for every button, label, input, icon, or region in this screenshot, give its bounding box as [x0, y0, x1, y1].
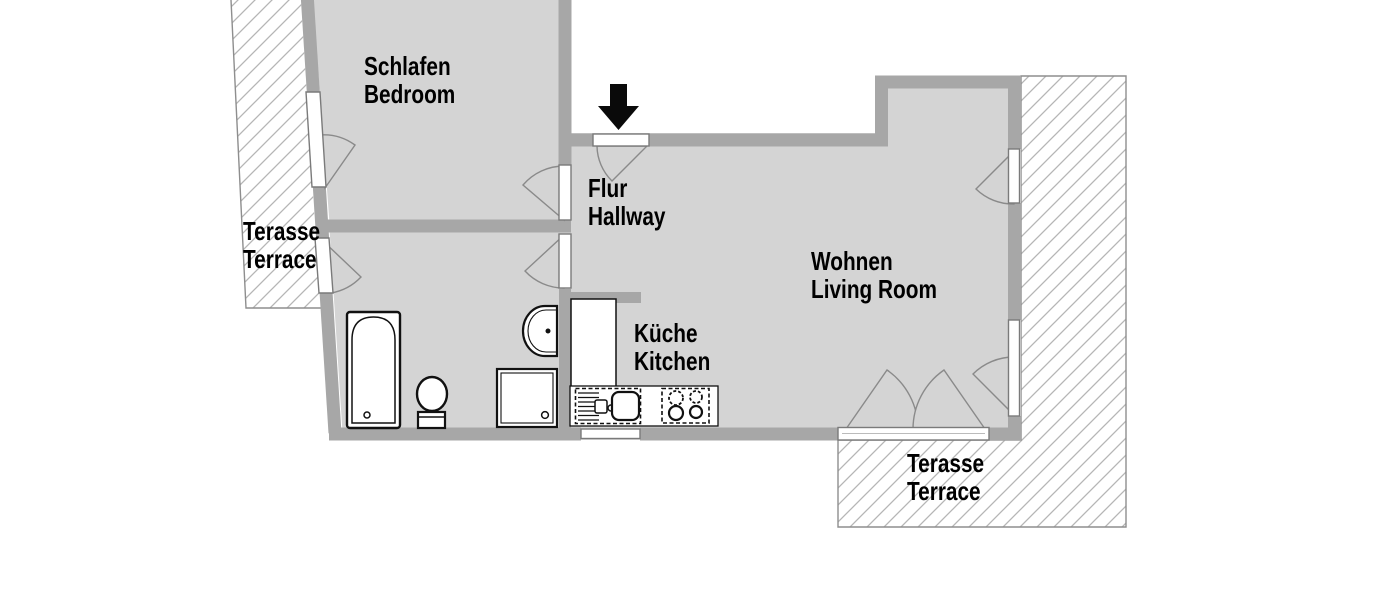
bedroom-floor: [313, 0, 571, 230]
toilet-icon: [417, 377, 447, 428]
room-label-kitchen: Küche Kitchen: [634, 319, 710, 375]
room-label-bedroom: Schlafen Bedroom: [364, 52, 455, 108]
room-label-kitchen-de: Küche: [634, 319, 710, 347]
entrance-arrow-icon: [598, 84, 639, 130]
room-label-terrace-left-en: Terrace: [243, 245, 320, 273]
room-label-terrace-left-de: Terasse: [243, 217, 320, 245]
room-label-terrace-right-de: Terasse: [907, 449, 984, 477]
floor-plan: Schlafen Bedroom Terasse Terrace Flur Ha…: [0, 0, 1400, 600]
room-label-terrace-right: Terasse Terrace: [907, 449, 984, 505]
bathtub-icon: [347, 312, 400, 428]
balcony-window-leaf: [1009, 149, 1020, 203]
room-label-hallway-de: Flur: [588, 174, 665, 202]
shower-icon: [497, 369, 557, 427]
refrigerator-icon: [571, 299, 616, 389]
entrance-door-leaf: [593, 134, 649, 146]
room-label-bedroom-en: Bedroom: [364, 80, 455, 108]
washbasin-icon: [523, 306, 557, 356]
floor-plan-drawing: [0, 0, 1400, 600]
room-label-hallway-en: Hallway: [588, 202, 665, 230]
room-label-kitchen-en: Kitchen: [634, 347, 710, 375]
bathroom-door-leaf: [559, 234, 571, 288]
room-label-living-room: Wohnen Living Room: [811, 247, 937, 303]
room-label-bedroom-de: Schlafen: [364, 52, 455, 80]
room-label-living-room-en: Living Room: [811, 275, 937, 303]
kitchen-window: [581, 429, 640, 439]
room-label-hallway: Flur Hallway: [588, 174, 665, 230]
balcony-door-leaf: [1009, 320, 1020, 416]
room-label-terrace-right-en: Terrace: [907, 477, 984, 505]
bedroom-door-leaf: [559, 165, 571, 220]
room-label-terrace-left: Terasse Terrace: [243, 217, 320, 273]
room-label-living-room-de: Wohnen: [811, 247, 937, 275]
